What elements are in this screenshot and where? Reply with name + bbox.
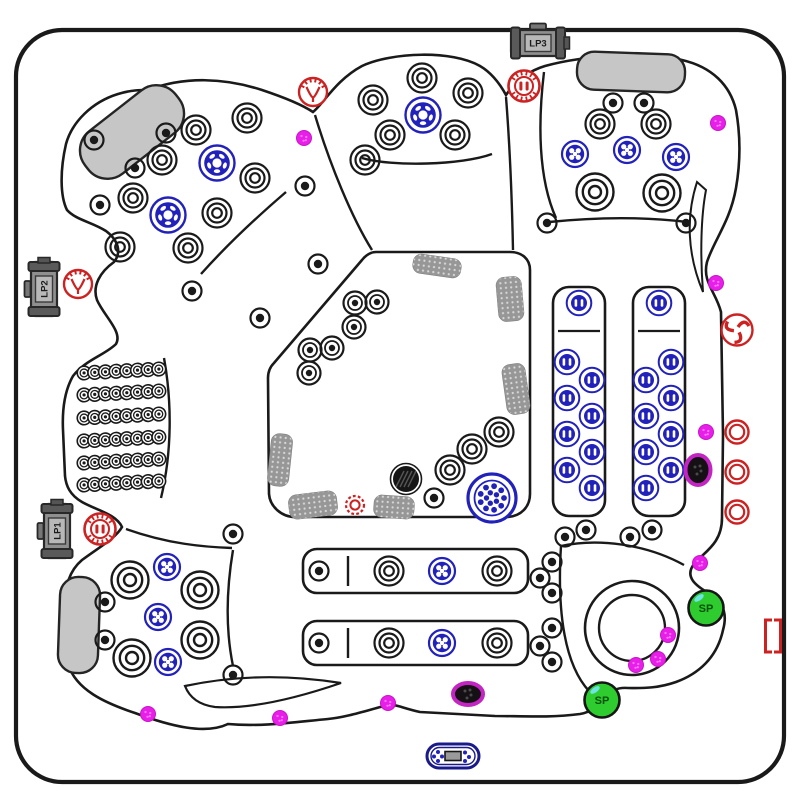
- pad-texture: [373, 495, 414, 520]
- jet-red-rotor: [102, 525, 105, 534]
- control-panel-button: [436, 750, 440, 754]
- led-light-magenta: [141, 707, 156, 722]
- jet-blue-cluster-large: [483, 505, 489, 511]
- pump-side-tab: [51, 500, 63, 506]
- control-panel-button: [467, 755, 471, 759]
- jet-dot-mid: [351, 324, 357, 330]
- jet-blue-slot: [559, 426, 575, 442]
- led-light-magenta: [711, 116, 726, 131]
- led-light-magenta: [712, 280, 714, 282]
- jet-blue-slot: [667, 394, 670, 402]
- jet-tick: [526, 97, 527, 101]
- jet-dot-small: [640, 99, 648, 107]
- jet-blue-slot: [588, 448, 591, 456]
- jet-blue-slot: [569, 394, 572, 402]
- jet-blue-slot: [673, 430, 676, 438]
- pump-side-tab: [38, 258, 50, 264]
- led-light-magenta: [707, 433, 709, 435]
- jet-dot-small: [188, 287, 196, 295]
- speaker: SP: [689, 591, 724, 626]
- drain-purple: [700, 470, 703, 473]
- led-light-magenta: [144, 711, 146, 713]
- jet-blue-slot: [638, 480, 654, 496]
- control-panel-display: [445, 752, 461, 761]
- jet-blue-cluster: [440, 569, 444, 573]
- jet-blue-slot: [642, 484, 645, 492]
- led-light-magenta: [302, 140, 304, 142]
- jet-dot-mid: [307, 347, 313, 353]
- led-light-magenta: [297, 131, 312, 146]
- jet-blue-slot: [594, 484, 597, 492]
- jet-red-gear: [346, 496, 364, 514]
- jet-blue-cluster-large: [498, 487, 504, 493]
- led-light-magenta: [707, 430, 709, 432]
- led-light-magenta: [664, 632, 666, 634]
- led-light-magenta: [714, 120, 716, 122]
- jet-dot-small: [256, 314, 264, 322]
- jet-blue-cluster-large: [498, 503, 504, 509]
- jet-blue-soccer: [165, 221, 171, 225]
- suction-pad: [288, 490, 339, 520]
- jet-blue-slot: [594, 412, 597, 420]
- suction-pad: [373, 495, 414, 520]
- drain-purple: [696, 473, 699, 476]
- led-light-magenta: [704, 434, 706, 436]
- jet-blue-cluster: [165, 565, 169, 569]
- jet-tick: [301, 86, 304, 88]
- bench-panel: [303, 549, 528, 593]
- jet-blue-slot: [663, 390, 679, 406]
- led-light-magenta: [654, 656, 656, 658]
- jet-dot-small: [548, 558, 556, 566]
- pad-texture: [496, 276, 525, 322]
- jet-tick: [75, 271, 76, 274]
- jet-dot-small: [314, 260, 322, 268]
- jet-tick: [97, 540, 98, 544]
- jet-dot-small: [229, 671, 237, 679]
- led-light-magenta: [702, 429, 704, 431]
- led-light-magenta: [305, 136, 307, 138]
- jet-dot-small: [315, 567, 323, 575]
- jet-blue-slot: [559, 354, 575, 370]
- jet-blue-slot: [584, 408, 600, 424]
- jet-blue-soccer: [420, 121, 426, 125]
- jet-dot-small: [96, 201, 104, 209]
- led-light-magenta: [149, 712, 151, 714]
- jet-blue-slot: [638, 408, 654, 424]
- led-light-magenta: [149, 715, 151, 717]
- drain-purple: [694, 466, 697, 469]
- pump-cap: [29, 307, 60, 316]
- jet-tick: [66, 278, 69, 280]
- led-light-magenta: [637, 663, 639, 665]
- jet-blue-slot: [648, 448, 651, 456]
- jet-dot-small: [682, 219, 690, 227]
- jet-blue-cluster-large: [478, 491, 484, 497]
- jet-blue-slot: [667, 466, 670, 474]
- led-light-magenta: [381, 696, 396, 711]
- jet-blue-slot: [563, 358, 566, 366]
- jet-red-rotor: [85, 514, 116, 545]
- jet-blue-cluster: [440, 641, 444, 645]
- jet-blue-slot: [569, 358, 572, 366]
- jet-blue-slot: [569, 466, 572, 474]
- jet-blue-slot: [575, 299, 578, 307]
- jet-blue-slot: [667, 430, 670, 438]
- jet-blue-cluster-large: [501, 495, 507, 501]
- led-light-magenta: [669, 636, 671, 638]
- jet-blue-slot: [638, 444, 654, 460]
- jet-blue-slot: [642, 412, 645, 420]
- jet-blue-cluster: [156, 615, 160, 619]
- led-light-magenta: [699, 425, 714, 440]
- led-light-magenta: [389, 701, 391, 703]
- jet-dot-small: [548, 658, 556, 666]
- jet-dot-small: [561, 533, 569, 541]
- led-light-magenta: [281, 716, 283, 718]
- jet-blue-cluster-large: [494, 492, 499, 497]
- jet-dot-mid: [329, 345, 335, 351]
- led-light-magenta: [278, 720, 280, 722]
- led-light-magenta: [281, 719, 283, 721]
- jet-dot-small: [315, 639, 323, 647]
- jet-blue-soccer: [163, 210, 172, 219]
- jet-blue-slot: [642, 448, 645, 456]
- led-light-magenta: [693, 556, 708, 571]
- drain-purple: [469, 689, 472, 692]
- led-light-magenta: [629, 658, 644, 673]
- jet-blue-slot: [588, 412, 591, 420]
- pump-top-nub: [530, 24, 546, 30]
- led-light-magenta: [389, 704, 391, 706]
- drain-purple: [470, 694, 473, 697]
- led-light-magenta: [273, 711, 288, 726]
- pump-side-tab: [564, 37, 570, 49]
- jet-tick: [310, 79, 311, 82]
- led-light-magenta: [637, 666, 639, 668]
- jet-tick: [102, 540, 103, 544]
- jet-dot-mid: [306, 370, 312, 376]
- jet-dot-small: [548, 589, 556, 597]
- jet-dot-small: [626, 533, 634, 541]
- jet-blue-slot: [661, 299, 664, 307]
- led-light-magenta: [651, 652, 666, 667]
- jet-tick: [521, 72, 522, 76]
- pump-label: LP2: [40, 280, 51, 297]
- jet-blue-cluster: [166, 660, 170, 664]
- jet-blue-slot: [571, 295, 587, 311]
- control-panel-button: [432, 755, 436, 759]
- led-light-magenta: [305, 139, 307, 141]
- jet-blue-soccer: [214, 169, 220, 173]
- led-light-magenta: [719, 121, 721, 123]
- led-light-magenta: [716, 125, 718, 127]
- jet-dot-small: [229, 530, 237, 538]
- jet-dot-small: [582, 526, 590, 534]
- spa-top-view: LP3LP2LP1SPSP: [0, 0, 800, 800]
- jet-red-rotor: [95, 525, 98, 534]
- drain-purple: [453, 683, 483, 705]
- led-light-magenta: [659, 657, 661, 659]
- jet-dot-small: [101, 636, 109, 644]
- jet-blue-slot: [648, 412, 651, 420]
- jet-blue-slot: [584, 480, 600, 496]
- jet-blue-slot: [563, 394, 566, 402]
- jet-blue-cluster-large: [494, 499, 499, 504]
- jet-blue-slot: [563, 466, 566, 474]
- jet-blue-soccer: [418, 110, 427, 119]
- drain-purple: [699, 465, 702, 468]
- jet-blue-cluster-large: [488, 490, 493, 495]
- jet-dot-small: [301, 182, 309, 190]
- jet-red-rotor: [509, 71, 540, 102]
- led-light-magenta: [666, 637, 668, 639]
- led-light-magenta: [698, 565, 700, 567]
- jet-tick: [526, 72, 527, 76]
- jet-blue-slot: [673, 358, 676, 366]
- jet-blue-slot: [655, 299, 658, 307]
- bench-panel: [303, 621, 528, 665]
- spa-jet-layout-diagram: LP3LP2LP1SPSP: [0, 0, 800, 800]
- jet-tick: [102, 515, 103, 519]
- jet-tick: [80, 271, 81, 274]
- led-light-magenta: [656, 661, 658, 663]
- headrest-pillow: [57, 576, 100, 673]
- led-light-magenta: [696, 560, 698, 562]
- jet-blue-slot: [673, 466, 676, 474]
- jet-red-rotor: [519, 82, 522, 91]
- jet-blue-slot: [569, 430, 572, 438]
- jet-blue-slot: [594, 448, 597, 456]
- led-light-magenta: [701, 561, 703, 563]
- jet-blue-cluster: [674, 155, 678, 159]
- pump-label: LP1: [53, 522, 64, 540]
- led-light-magenta: [719, 124, 721, 126]
- led-light-magenta: [632, 662, 634, 664]
- led-light-magenta: [386, 705, 388, 707]
- led-light-magenta: [276, 715, 278, 717]
- jet-blue-cluster-large: [478, 499, 484, 505]
- jet-blue-slot: [581, 299, 584, 307]
- pump-cap: [42, 549, 73, 558]
- jet-blue-slot: [651, 295, 667, 311]
- speaker: SP: [585, 683, 620, 718]
- led-light-magenta: [714, 285, 716, 287]
- jet-blue-cluster: [625, 148, 629, 152]
- jet-blue-cluster-large: [488, 501, 493, 506]
- pump-top-nub: [38, 523, 44, 539]
- led-light-magenta: [659, 660, 661, 662]
- jet-dot-small: [430, 494, 438, 502]
- jet-red-rotor: [526, 82, 529, 91]
- led-light-magenta: [300, 135, 302, 137]
- led-light-magenta: [709, 276, 724, 291]
- pump-cap: [511, 28, 520, 59]
- drain-purple: [466, 697, 469, 700]
- jet-blue-slot: [673, 394, 676, 402]
- led-light-magenta: [146, 716, 148, 718]
- jet-blue-cluster-large: [491, 483, 497, 489]
- jet-tick: [97, 515, 98, 519]
- control-panel-button: [463, 759, 467, 763]
- jet-blue-cluster-large: [491, 507, 497, 513]
- jet-blue-slot: [588, 376, 591, 384]
- suction-pad: [496, 276, 525, 322]
- jet-dot-small: [90, 136, 98, 144]
- pump-lp2: LP2: [25, 258, 60, 317]
- jet-blue-slot: [559, 462, 575, 478]
- led-light-magenta: [661, 628, 676, 643]
- jet-blue-cluster: [573, 152, 577, 156]
- jet-blue-cluster-large: [484, 495, 489, 500]
- jet-blue-slot: [584, 444, 600, 460]
- jet-dot-small: [131, 164, 139, 172]
- jet-blue-slot: [594, 376, 597, 384]
- jet-dot-small: [536, 574, 544, 582]
- jet-tick: [87, 278, 90, 280]
- jet-blue-slot: [648, 484, 651, 492]
- led-light-magenta: [634, 667, 636, 669]
- drain-purple: [464, 690, 467, 693]
- jet-tick: [315, 79, 316, 82]
- jet-blue-slot: [584, 372, 600, 388]
- pump-label: LP3: [529, 39, 546, 50]
- control-panel-button: [440, 755, 444, 759]
- led-light-magenta: [717, 284, 719, 286]
- speaker-label: SP: [595, 695, 610, 707]
- control-panel-button: [436, 759, 440, 763]
- jet-blue-slot: [663, 462, 679, 478]
- pump-top-nub: [25, 281, 31, 297]
- jet-blue-cluster-large: [483, 485, 489, 491]
- jet-dot-mid: [374, 299, 380, 305]
- jet-blue-slot: [559, 390, 575, 406]
- speaker-label: SP: [699, 603, 714, 615]
- jet-blue-slot: [648, 376, 651, 384]
- jet-blue-slot: [638, 372, 654, 388]
- control-panel-button: [463, 751, 467, 755]
- jet-dot-small: [648, 526, 656, 534]
- headrest-pillow: [576, 51, 685, 93]
- jet-dot-small: [536, 642, 544, 650]
- pump-lp1: LP1: [38, 500, 73, 559]
- jet-tick: [322, 86, 325, 88]
- led-light-magenta: [384, 700, 386, 702]
- jet-dot-small: [543, 219, 551, 227]
- jet-dot-small: [548, 624, 556, 632]
- led-light-magenta: [701, 564, 703, 566]
- jet-blue-slot: [563, 430, 566, 438]
- jet-tick: [521, 97, 522, 101]
- jet-dot-small: [101, 598, 109, 606]
- jet-blue-slot: [667, 358, 670, 366]
- jet-blue-slot: [588, 484, 591, 492]
- topside-control-panel: [427, 744, 479, 768]
- drain-purple: [686, 455, 711, 485]
- jet-dot-small: [162, 129, 170, 137]
- jet-blue-slot: [663, 354, 679, 370]
- led-light-magenta: [717, 281, 719, 283]
- jet-blue-slot: [642, 376, 645, 384]
- jet-dot-small: [609, 99, 617, 107]
- jet-blue-slot: [663, 426, 679, 442]
- pump-lp3: LP3: [511, 24, 570, 59]
- jet-blue-soccer: [212, 158, 221, 167]
- drain-black: [393, 466, 419, 492]
- led-light-magenta: [669, 633, 671, 635]
- jet-dot-mid: [352, 300, 358, 306]
